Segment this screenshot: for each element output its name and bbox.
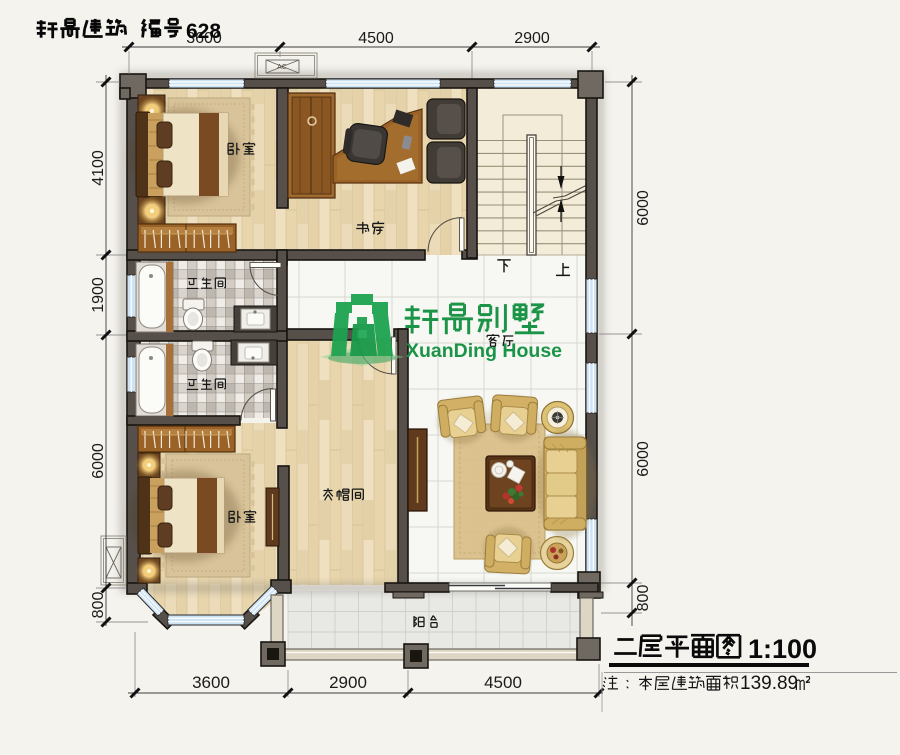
svg-text:2900: 2900: [329, 673, 367, 692]
svg-text:XuanDing House: XuanDing House: [406, 340, 562, 362]
svg-text:3600: 3600: [192, 673, 230, 692]
svg-text:AC: AC: [277, 64, 287, 71]
svg-text:4100: 4100: [90, 150, 107, 186]
svg-text:6000: 6000: [90, 443, 107, 479]
svg-text:2900: 2900: [514, 30, 550, 47]
svg-text:1:100: 1:100: [748, 634, 817, 664]
svg-text:4500: 4500: [358, 30, 394, 47]
svg-text:4500: 4500: [484, 673, 522, 692]
svg-text:6000: 6000: [635, 190, 652, 226]
svg-text:6000: 6000: [635, 441, 652, 477]
svg-text:1900: 1900: [90, 277, 107, 313]
svg-text:628: 628: [186, 20, 221, 43]
svg-text:139.89: 139.89: [740, 673, 798, 694]
svg-text:800: 800: [90, 592, 107, 619]
svg-text:800: 800: [635, 585, 652, 612]
